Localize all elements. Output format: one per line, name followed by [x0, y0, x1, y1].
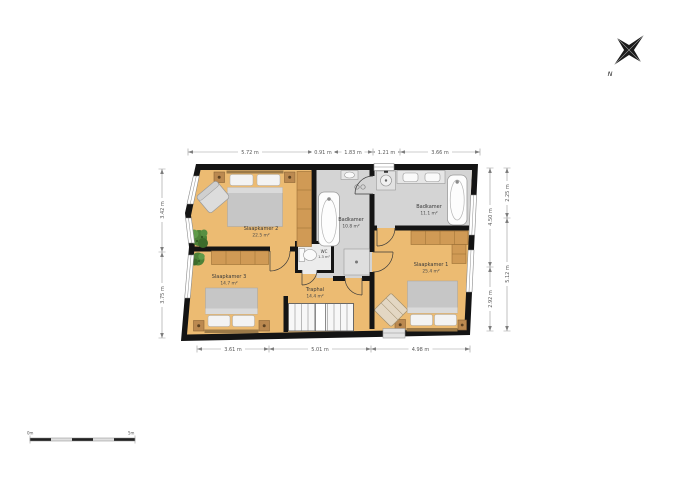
dim-label: 2.25 m	[505, 184, 511, 202]
dim-label: 3.75 m	[160, 286, 166, 304]
room-name: Slaapkamer 1	[414, 262, 449, 268]
room-name: Traphal	[305, 287, 324, 293]
pillow	[411, 315, 433, 326]
scale-end-label: 5m	[128, 431, 135, 436]
wall-bath-right-a	[370, 170, 375, 176]
dim-label: 5.12 m	[505, 265, 511, 283]
dim-label: 1.21 m	[378, 150, 396, 156]
dim-label: 5.01 m	[311, 347, 329, 353]
dim-label: 0.91 m	[314, 150, 332, 156]
room-name: WC	[321, 249, 328, 254]
wardrobe-slaapkamer3	[212, 251, 269, 265]
stair-landing	[316, 304, 326, 332]
shower-drain	[385, 179, 387, 181]
wall-bath-right-b	[370, 194, 375, 252]
dim-label: 1.83 m	[344, 150, 362, 156]
room-area: 22.5 m²	[252, 233, 269, 239]
dim-label: 3.61 m	[224, 347, 242, 353]
wall-sk3-traphal	[284, 296, 289, 332]
duvet-fold	[408, 308, 458, 314]
room-area: 25.4 m²	[422, 269, 439, 275]
pillow	[208, 316, 230, 327]
room-area: 11.1 m²	[420, 211, 437, 217]
scale-start-label: 0m	[27, 431, 34, 436]
wardrobe-slaapkamer2	[297, 172, 312, 247]
toilet-bowl	[304, 250, 317, 261]
dimension-col-left: 3.42 m 3.75 m	[158, 169, 166, 338]
duvet-fold	[206, 309, 258, 315]
compass: N	[602, 23, 656, 78]
tub-faucet	[327, 197, 331, 201]
room-area: 14.4 m²	[306, 294, 323, 300]
room-name: Slaapkamer 2	[244, 226, 279, 232]
pillow	[233, 316, 255, 327]
room-name: Badkamer	[338, 217, 364, 223]
dimension-col-right-outer: 2.25 m 5.12 m	[503, 168, 511, 331]
shower-drain	[355, 261, 358, 264]
compass-north-label: N	[608, 70, 613, 78]
headboard	[227, 171, 284, 174]
headboard	[407, 328, 458, 332]
room-area: 1.3 m²	[318, 255, 330, 259]
pillow	[257, 175, 280, 186]
wall-sk2-bath	[312, 170, 317, 249]
dimension-col-right-inner: 4.50 m 2.92 m	[486, 168, 494, 331]
sink	[403, 173, 418, 182]
wall-bath-traphal-a	[333, 276, 345, 281]
pillow	[230, 175, 253, 186]
dim-label: 3.66 m	[431, 150, 449, 156]
scale-bar: 0m 5m	[27, 431, 135, 444]
wall-bad2-sk1-a	[372, 226, 377, 231]
tub-faucet	[456, 180, 459, 183]
pillow	[435, 315, 457, 326]
dimension-row-bottom: 3.61 m 5.01 m 4.98 m	[197, 345, 470, 353]
dim-label: 4.98 m	[412, 347, 430, 353]
dim-label: 4.50 m	[488, 208, 494, 226]
room-area: 14.7 m²	[220, 281, 237, 287]
floor-plan-svg: Slaapkamer 2 22.5 m² Badkamer 10.8 m² Ba…	[0, 0, 678, 480]
duvet	[228, 188, 283, 227]
duvet-fold	[228, 188, 283, 194]
headboard	[205, 330, 259, 334]
dim-label: 2.92 m	[488, 290, 494, 308]
wall-bad2-sk1-b	[395, 226, 469, 231]
room-name: Badkamer	[416, 204, 442, 210]
sink	[425, 173, 440, 182]
staircase	[289, 304, 354, 332]
wc-door-gap	[302, 269, 317, 275]
floorplan-canvas: Slaapkamer 2 22.5 m² Badkamer 10.8 m² Ba…	[0, 0, 678, 480]
dim-label: 3.42 m	[160, 201, 166, 219]
dim-label: 5.72 m	[241, 150, 259, 156]
dimension-row-top: 5.72 m 0.91 m 1.83 m 1.21 m 3.66 m	[188, 148, 480, 156]
wall-bath-traphal-b	[362, 276, 372, 281]
room-name: Slaapkamer 3	[212, 274, 247, 280]
room-area: 10.8 m²	[342, 224, 359, 230]
